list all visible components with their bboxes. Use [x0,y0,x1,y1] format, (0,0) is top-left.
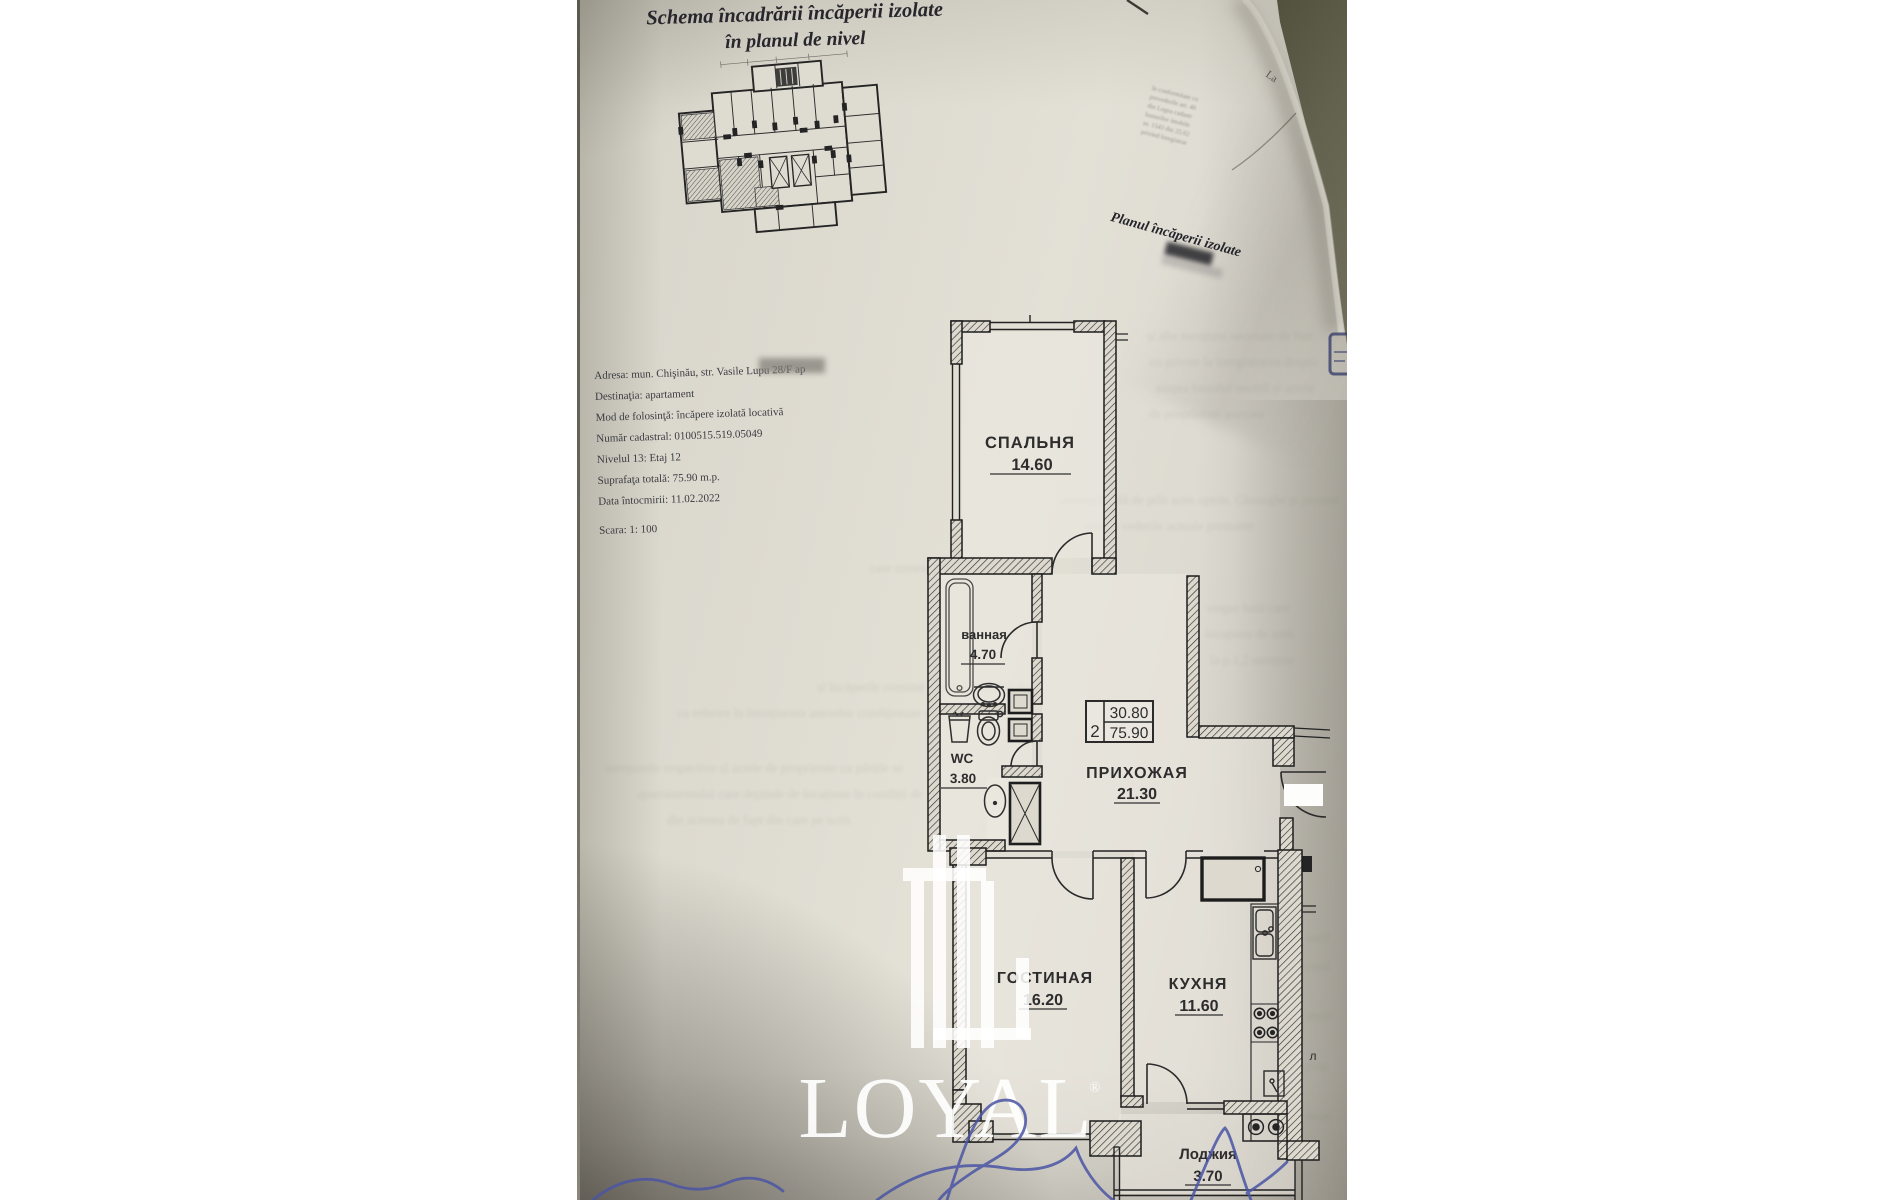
svg-text:4.70: 4.70 [970,647,996,662]
svg-text:11.60: 11.60 [1179,998,1218,1015]
svg-text:75.90: 75.90 [1110,725,1149,742]
svg-text:КУХНЯ: КУХНЯ [1169,976,1228,993]
svg-text:21.30: 21.30 [1117,786,1157,803]
svg-text:ПРИХОЖАЯ: ПРИХОЖАЯ [1086,765,1188,782]
svg-text:WC: WC [951,751,974,766]
svg-text:2: 2 [1090,722,1099,741]
svg-text:ГОСТИНАЯ: ГОСТИНАЯ [997,970,1093,987]
svg-text:LOYAL: LOYAL [798,1059,1093,1156]
svg-text:14.60: 14.60 [1011,456,1052,474]
svg-text:3.80: 3.80 [950,771,976,786]
svg-text:30.80: 30.80 [1110,705,1149,722]
svg-text:ванная: ванная [961,627,1007,642]
svg-text:л: л [1309,1049,1316,1063]
svg-text:СПАЛЬНЯ: СПАЛЬНЯ [985,434,1075,452]
svg-text:®: ® [1089,1080,1100,1096]
